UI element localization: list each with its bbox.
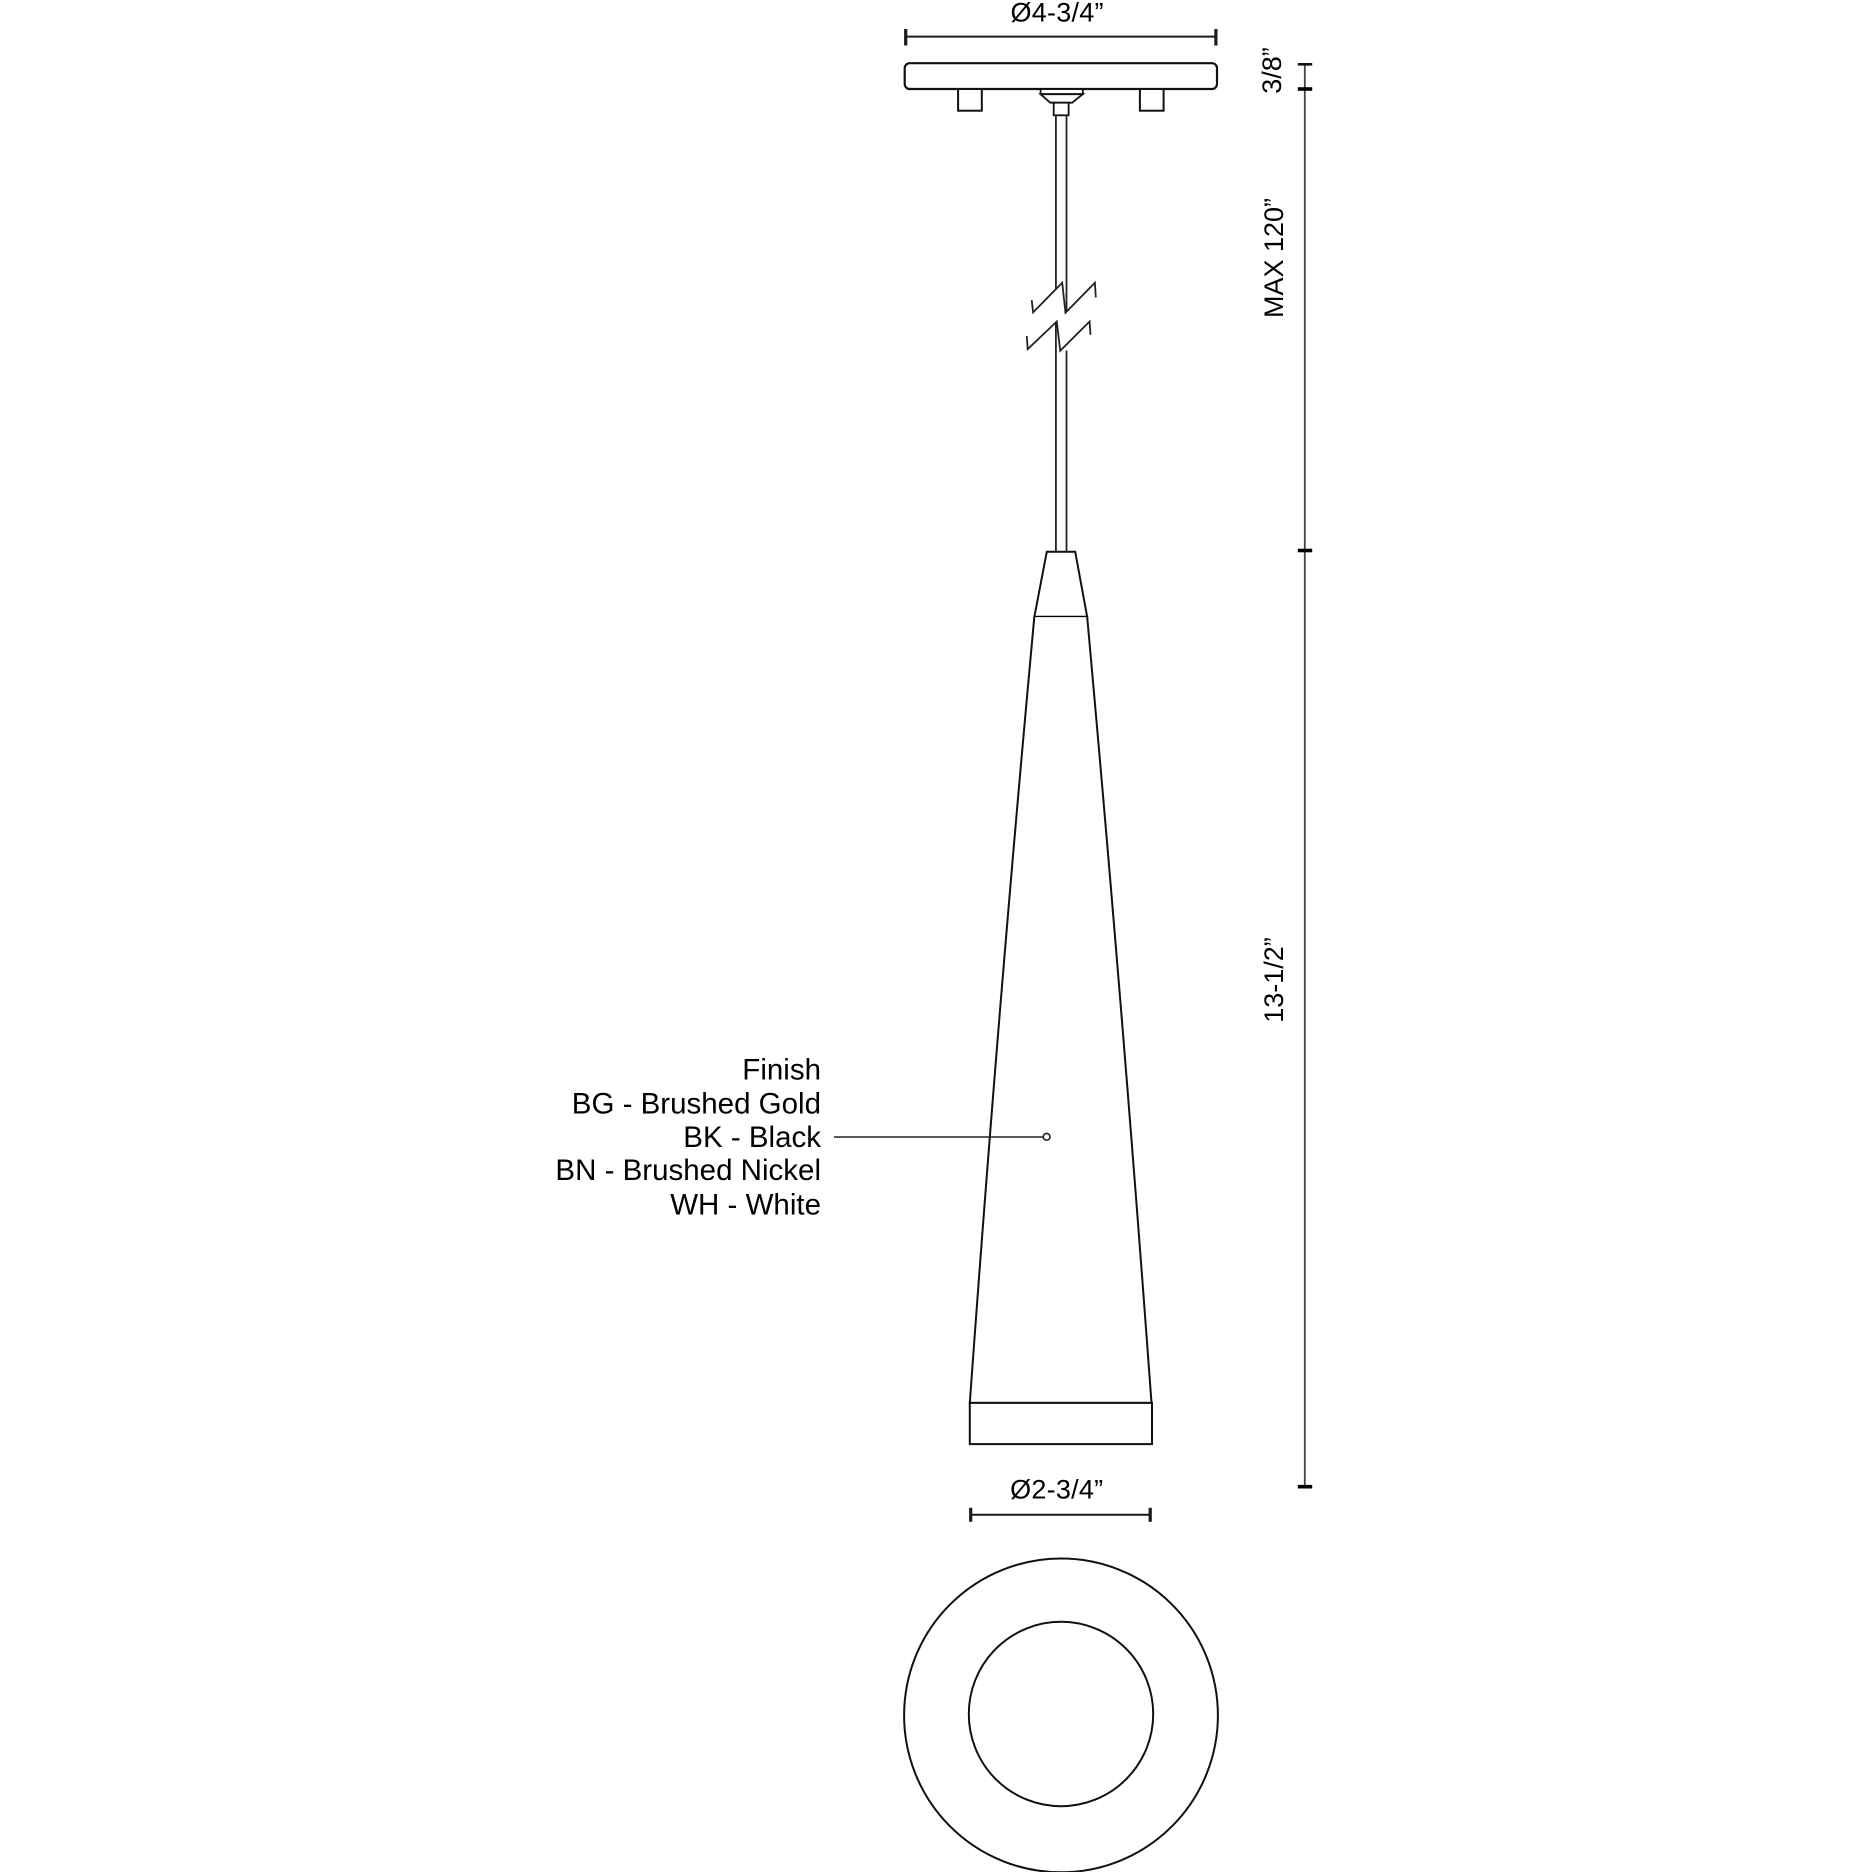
svg-text:BN - Brushed Nickel: BN - Brushed Nickel: [555, 1154, 821, 1187]
svg-text:Ø4-3/4”: Ø4-3/4”: [1011, 0, 1104, 27]
svg-text:13-1/2”: 13-1/2”: [1259, 937, 1289, 1023]
svg-text:WH - White: WH - White: [670, 1188, 821, 1221]
svg-text:MAX 120”: MAX 120”: [1259, 198, 1289, 318]
svg-text:BK - Black: BK - Black: [683, 1121, 821, 1154]
svg-text:3/8”: 3/8”: [1257, 47, 1287, 94]
svg-text:Ø2-3/4”: Ø2-3/4”: [1010, 1474, 1103, 1504]
svg-text:Finish: Finish: [742, 1054, 821, 1087]
svg-text:BG - Brushed Gold: BG - Brushed Gold: [572, 1088, 821, 1121]
